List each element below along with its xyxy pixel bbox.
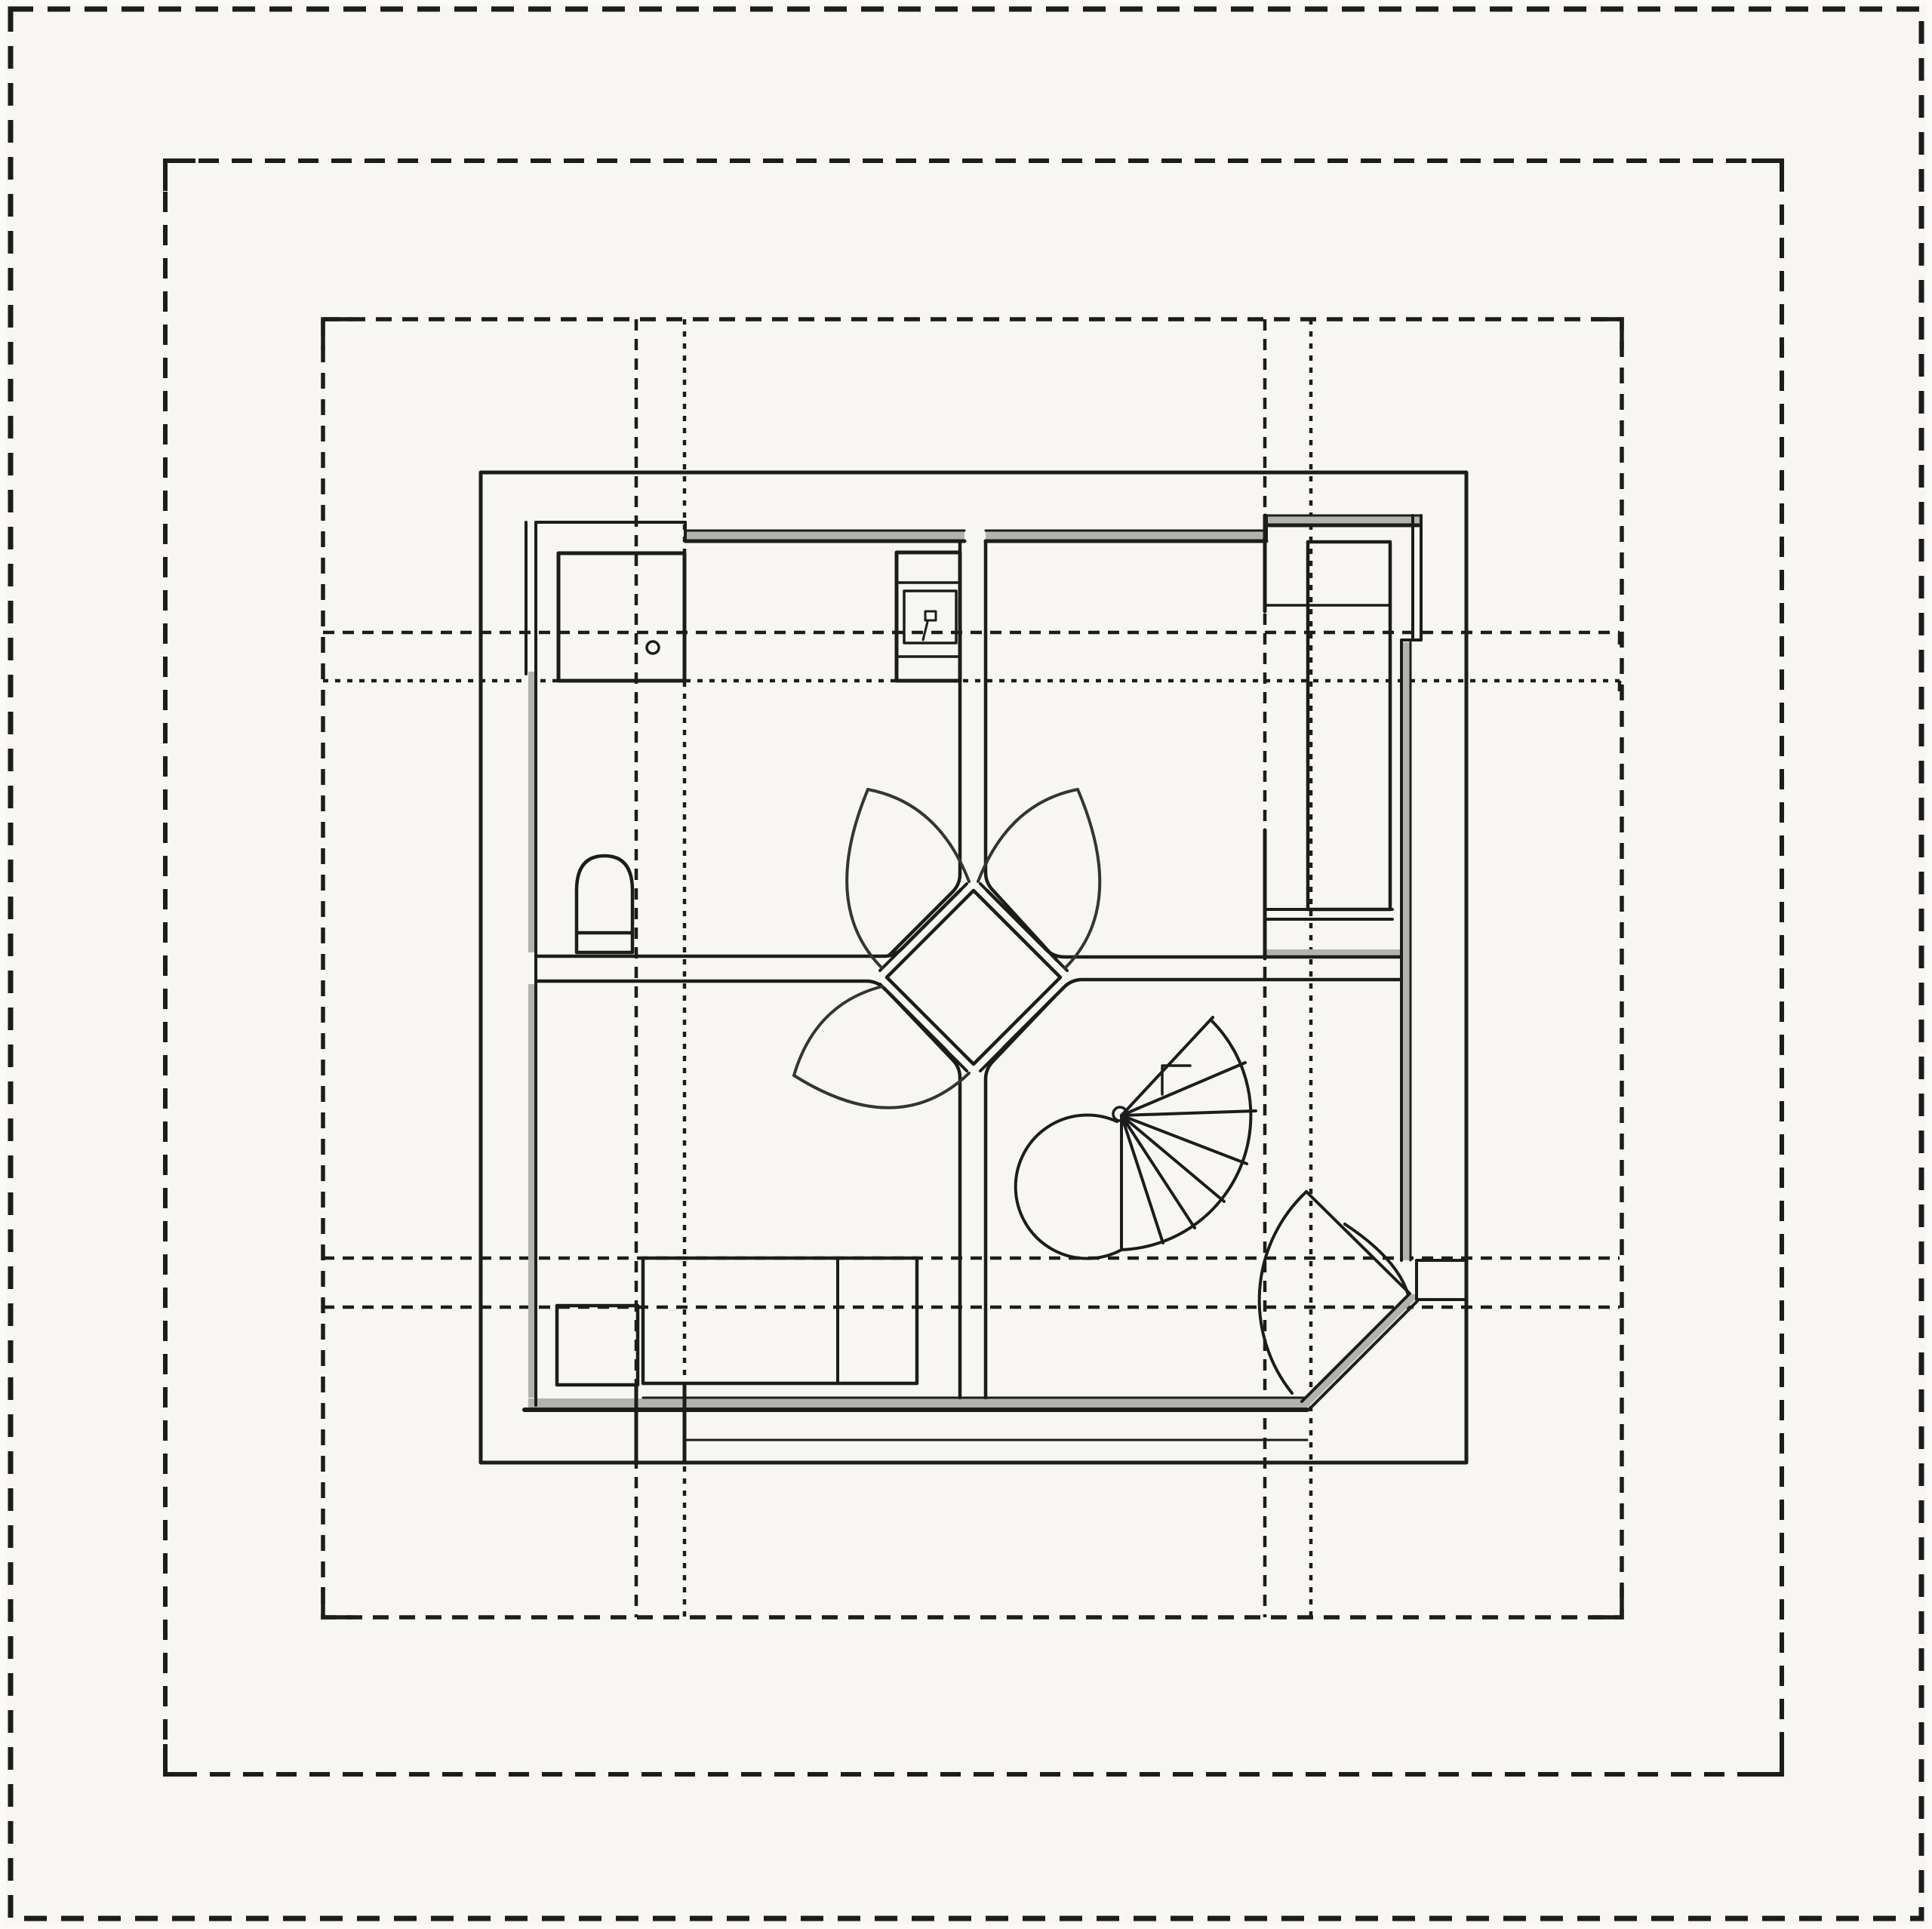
poche-bottom [528, 1398, 1305, 1409]
sheet-area [6, 5, 1926, 1924]
floor-plan-svg [0, 0, 1932, 1929]
drawing-sheet [0, 0, 1932, 1929]
